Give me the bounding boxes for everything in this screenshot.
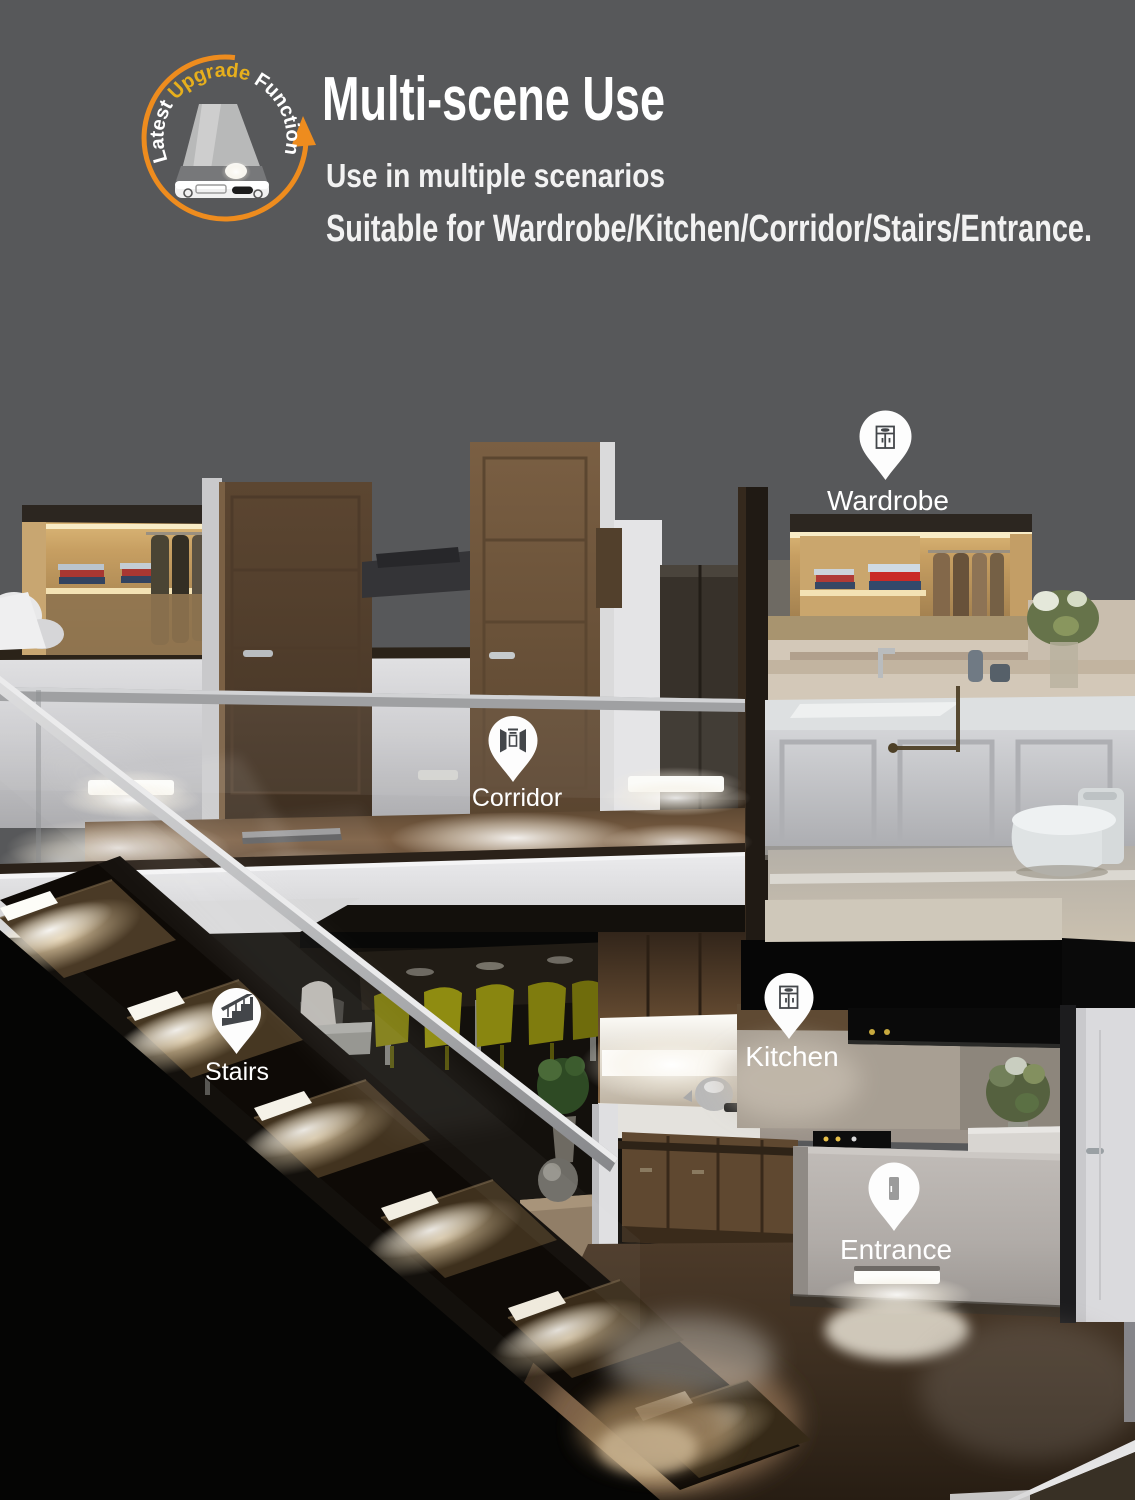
svg-text:Suitable for Wardrobe/Kitchen/: Suitable for Wardrobe/Kitchen/Corridor/S… [326, 208, 1092, 250]
svg-text:Kitchen: Kitchen [745, 1041, 838, 1072]
svg-text:Use in multiple scenarios: Use in multiple scenarios [326, 157, 665, 194]
svg-text:Corridor: Corridor [472, 784, 562, 812]
svg-text:Multi-scene Use: Multi-scene Use [322, 65, 665, 134]
svg-text:Entrance: Entrance [840, 1234, 952, 1265]
svg-text:Wardrobe: Wardrobe [827, 485, 949, 516]
svg-text:Stairs: Stairs [205, 1058, 269, 1086]
